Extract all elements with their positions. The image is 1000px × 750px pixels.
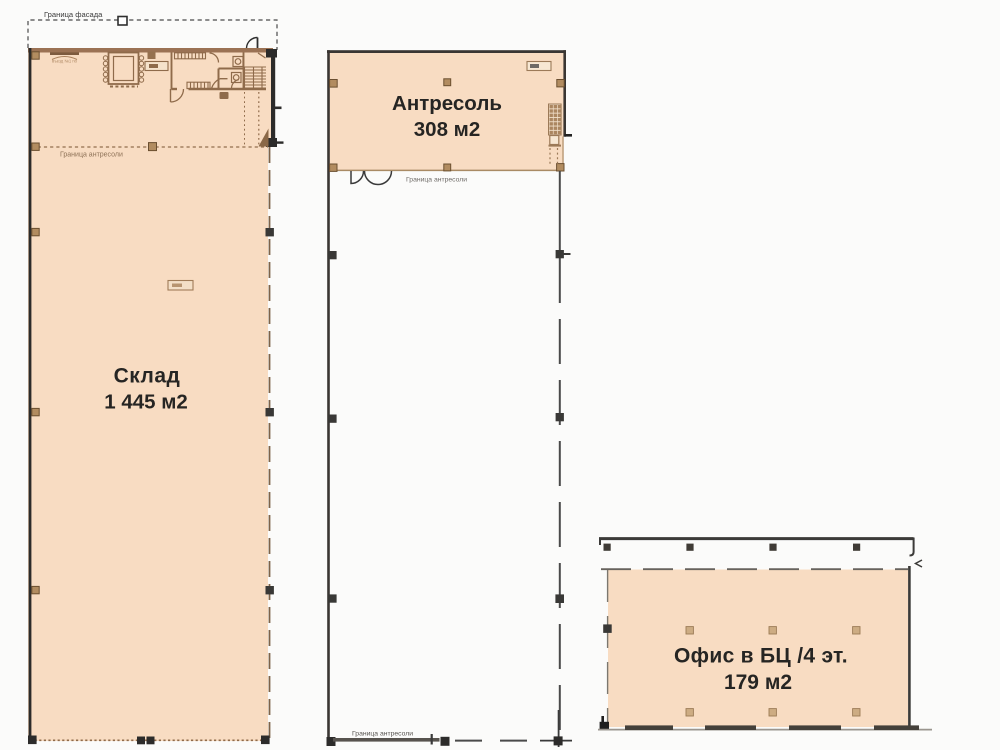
- svg-text:въезд №1 по: въезд №1 по: [52, 59, 78, 64]
- svg-text:308 м2: 308 м2: [414, 118, 480, 141]
- svg-text:1 445 м2: 1 445 м2: [104, 391, 188, 414]
- svg-text:Офис в БЦ /4 эт.: Офис в БЦ /4 эт.: [674, 645, 848, 668]
- svg-text:179 м2: 179 м2: [724, 671, 792, 694]
- svg-text:Граница антресоли: Граница антресоли: [60, 152, 123, 159]
- svg-text:Склад: Склад: [114, 365, 181, 388]
- svg-text:Антресоль: Антресоль: [392, 92, 502, 115]
- svg-text:Граница антресоли: Граница антресоли: [352, 731, 413, 738]
- svg-text:Граница фасада: Граница фасада: [44, 10, 103, 19]
- svg-text:Граница антресоли: Граница антресоли: [406, 177, 467, 184]
